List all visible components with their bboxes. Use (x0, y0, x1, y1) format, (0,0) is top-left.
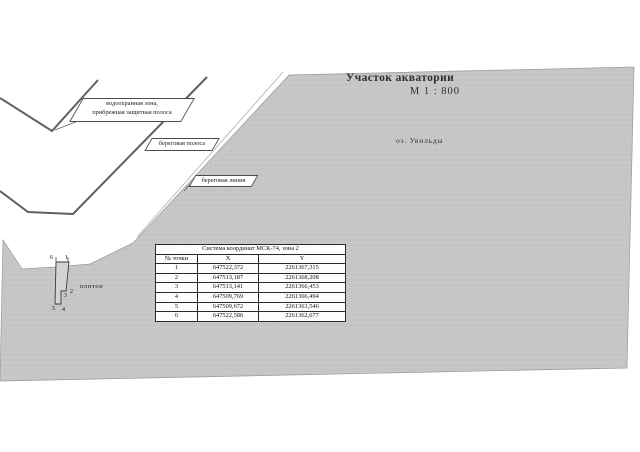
zone-label-line1: водоохранная зона, (79, 99, 185, 108)
table-cell: 6 (156, 312, 198, 322)
pontoon-point-3: 3 (64, 293, 67, 299)
table-cell: 2261368,208 (259, 273, 346, 283)
table-cell: 2261362,677 (259, 312, 346, 322)
table-title-row: Система координат МСК-74, зона 2 (156, 245, 346, 255)
pontoon-point-4: 4 (62, 307, 65, 313)
coords-table-body: 1647522,3722261367,3152647513,1872261368… (156, 264, 346, 322)
shore-strip-label-text: береговая полоса (148, 138, 216, 149)
map-scale: М 1 : 800 (380, 86, 490, 97)
table-row: 2647513,1872261368,208 (156, 273, 346, 283)
table-cell: 647513,187 (198, 273, 259, 283)
table-cell: 2261363,546 (259, 302, 346, 312)
table-cell: 647509,672 (198, 302, 259, 312)
map-canvas (0, 0, 640, 452)
col-header-y: Y (259, 254, 346, 264)
table-cell: 2261366,494 (259, 292, 346, 302)
table-row: 5647509,6722261363,546 (156, 302, 346, 312)
pontoon-point-1: 1 (65, 255, 68, 261)
page-title: Участок акватории (310, 72, 490, 84)
table-row: 4647509,7692261366,494 (156, 292, 346, 302)
lake-name-label: оз. Увильды (396, 136, 443, 145)
pontoon-label: понтон (80, 283, 103, 290)
table-cell: 647522,586 (198, 312, 259, 322)
table-cell: 647513,141 (198, 283, 259, 293)
table-header-row: № точки X Y (156, 254, 346, 264)
table-cell: 5 (156, 302, 198, 312)
table-row: 3647513,1412261366,453 (156, 283, 346, 293)
shoreline-label: береговая линия (192, 175, 255, 187)
table-row: 1647522,3722261367,315 (156, 264, 346, 274)
table-cell: 647509,769 (198, 292, 259, 302)
zone-label-leader-line (55, 121, 78, 130)
table-cell: 3 (156, 283, 198, 293)
pontoon-point-2: 2 (70, 289, 73, 295)
shore-strip-label: береговая полоса (148, 138, 216, 151)
shoreline-label-text: береговая линия (192, 175, 255, 186)
table-cell: 1 (156, 264, 198, 274)
coords-table-title: Система координат МСК-74, зона 2 (156, 245, 346, 255)
pontoon-point-5: 5 (52, 306, 55, 312)
zone-label-line2: прибрежная защитная полоса (79, 108, 185, 117)
table-cell: 2261367,315 (259, 264, 346, 274)
survey-plan-sheet: Участок акватории М 1 : 800 оз. Увильды … (0, 0, 640, 452)
coords-table: Система координат МСК-74, зона 2 № точки… (155, 244, 346, 322)
table-cell: 2 (156, 273, 198, 283)
col-header-point: № точки (156, 254, 198, 264)
table-cell: 647522,372 (198, 264, 259, 274)
pontoon-point-6: 6 (50, 255, 53, 261)
protection-zone-label: водоохранная зона, прибрежная защитная п… (76, 98, 188, 122)
table-cell: 2261366,453 (259, 283, 346, 293)
table-cell: 4 (156, 292, 198, 302)
table-row: 6647522,5862261362,677 (156, 312, 346, 322)
col-header-x: X (198, 254, 259, 264)
